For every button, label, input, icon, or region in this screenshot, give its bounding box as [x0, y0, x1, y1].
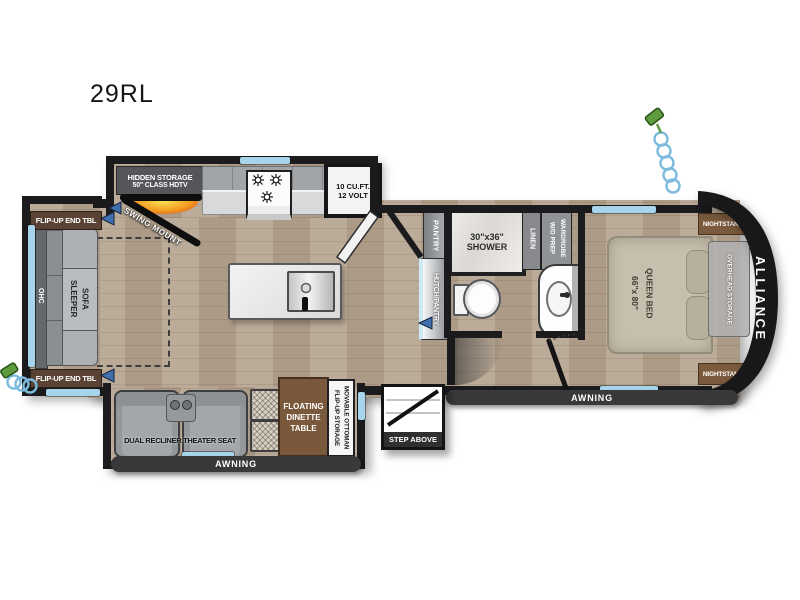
sleeper-sofa-label: SLEEPER SOFA: [60, 262, 98, 336]
bed-line1: QUEEN BED: [642, 268, 656, 319]
pantry-text: PANTRY: [430, 220, 441, 252]
wall-bath-bedroom: [578, 207, 585, 340]
linen-cabinet: LINEN: [522, 207, 541, 270]
theater-seat-label: DUAL RECLINER THEATER SEAT: [112, 432, 248, 448]
model-label: 29RL: [90, 80, 154, 109]
ottoman-storage: MOVABLE OTTOMAN FLIP-UP STORAGE: [327, 379, 355, 457]
wall-bath-bottom-right: [536, 331, 584, 338]
theater-seat-unit: DUAL RECLINER THEATER SEAT: [112, 388, 248, 458]
window-bedroom-top: [592, 206, 656, 213]
pillow-bottom: [686, 296, 710, 340]
hidden-storage-line1: HIDDEN STORAGE: [128, 173, 193, 182]
pillow-top: [686, 250, 710, 294]
ottoman-line2: FLIP-UP STORAGE: [331, 386, 341, 449]
brand-text: ALLIANCE: [753, 256, 768, 342]
dinette-line1: FLOATING: [283, 402, 323, 411]
shower-line1: 30"x36": [470, 232, 504, 242]
wardrobe-wd-prep: WARDROBE W/D PREP: [541, 207, 572, 270]
wall-bath-left: [444, 207, 451, 338]
step-text: STEP ABOVE: [389, 435, 437, 444]
fridge-line1: 10 CU.FT.: [336, 182, 370, 191]
linen-text: LINEN: [526, 228, 536, 249]
slide-travel-outline: [97, 237, 170, 367]
power-cord-lead-front: [657, 124, 661, 133]
power-plug-front: [645, 108, 665, 126]
window-rear-side: [28, 225, 35, 367]
nightstand-bottom-text: NIGHTSTAND: [703, 371, 743, 378]
awning-left: AWNING: [111, 456, 361, 472]
stove-icon: [246, 170, 292, 220]
brand-label: ALLIANCE: [747, 233, 768, 365]
sofa-line1: SLEEPER: [67, 280, 79, 317]
theater-seat-text: DUAL RECLINER THEATER SEAT: [124, 436, 236, 445]
hutch-pantry-text: HUTCH/PANTRY: [430, 273, 440, 325]
dinette-line3: TABLE: [290, 424, 316, 433]
wall-bottom-slide-left: [103, 383, 111, 469]
island-sink: [287, 271, 335, 312]
bed-line2: 66"x 80": [628, 268, 642, 319]
wardrobe-line2: W/D PREP: [546, 219, 556, 258]
ohc-text: OHC: [35, 288, 45, 304]
shower: 30"x36" SHOWER: [448, 207, 526, 276]
step-label: STEP ABOVE: [384, 432, 442, 447]
entry-step: STEP ABOVE: [381, 384, 445, 450]
dinette-table: FLOATING DINETTE TABLE: [278, 377, 329, 457]
nightstand-top: NIGHTSTAND: [698, 213, 748, 235]
overhead-storage-text: OVERHEAD STORAGE: [724, 254, 733, 325]
ohc-label: OHC: [33, 225, 47, 367]
fridge-line2: 12 VOLT: [338, 191, 368, 200]
dinette-line2: DINETTE: [286, 413, 320, 422]
wall-rear-top: [22, 196, 102, 204]
nightstand-top-text: NIGHTSTAND: [703, 221, 743, 228]
cupholder-right: [182, 400, 192, 410]
overhead-storage: OVERHEAD STORAGE: [708, 241, 750, 337]
awning-right-text: AWNING: [571, 393, 613, 403]
awning-right: AWNING: [446, 390, 738, 405]
dinette-chair-top: [250, 389, 281, 421]
window-slide-right: [358, 392, 365, 420]
ottoman-text: MOVABLE OTTOMAN FLIP-UP STORAGE: [331, 386, 350, 449]
window-kitchen: [240, 157, 290, 164]
window-rear-bottom: [46, 389, 100, 396]
sleeper-sofa-text: SLEEPER SOFA: [67, 280, 90, 317]
floorplan-canvas: 29RL OHC SLEEPER SOFA FLIP-UP END TBL FL…: [0, 0, 800, 600]
wardrobe-line1: WARDROBE: [557, 219, 567, 258]
cupholder-left: [170, 400, 180, 410]
nightstand-bottom: NIGHTSTAND: [698, 363, 748, 385]
end-table-bottom: FLIP-UP END TBL: [30, 369, 102, 388]
vanity-sink: [546, 281, 572, 317]
ottoman-line1: MOVABLE OTTOMAN: [341, 386, 351, 449]
power-cord-icon-front: [655, 133, 680, 193]
toilet-icon: [463, 279, 501, 319]
awning-left-text: AWNING: [215, 459, 257, 469]
wall-bath-bottom-left: [444, 331, 502, 338]
wardrobe-text: WARDROBE W/D PREP: [546, 219, 567, 258]
sofa-line2: SOFA: [79, 280, 91, 317]
hidden-storage-cabinet: HIDDEN STORAGE 50" CLASS HDTV: [116, 166, 204, 195]
queen-bed-label: QUEEN BED 66"x 80": [620, 242, 664, 344]
power-plug-rear: [0, 362, 18, 378]
end-table-top: FLIP-UP END TBL: [30, 211, 102, 230]
dinette-chair-bottom: [250, 420, 281, 452]
wall-top-main: [376, 205, 712, 213]
queen-bed-text: QUEEN BED 66"x 80": [628, 268, 657, 319]
hidden-storage-line2: 50" CLASS HDTV: [133, 182, 188, 189]
step-graphic: [384, 387, 442, 429]
shower-line2: SHOWER: [467, 242, 508, 252]
